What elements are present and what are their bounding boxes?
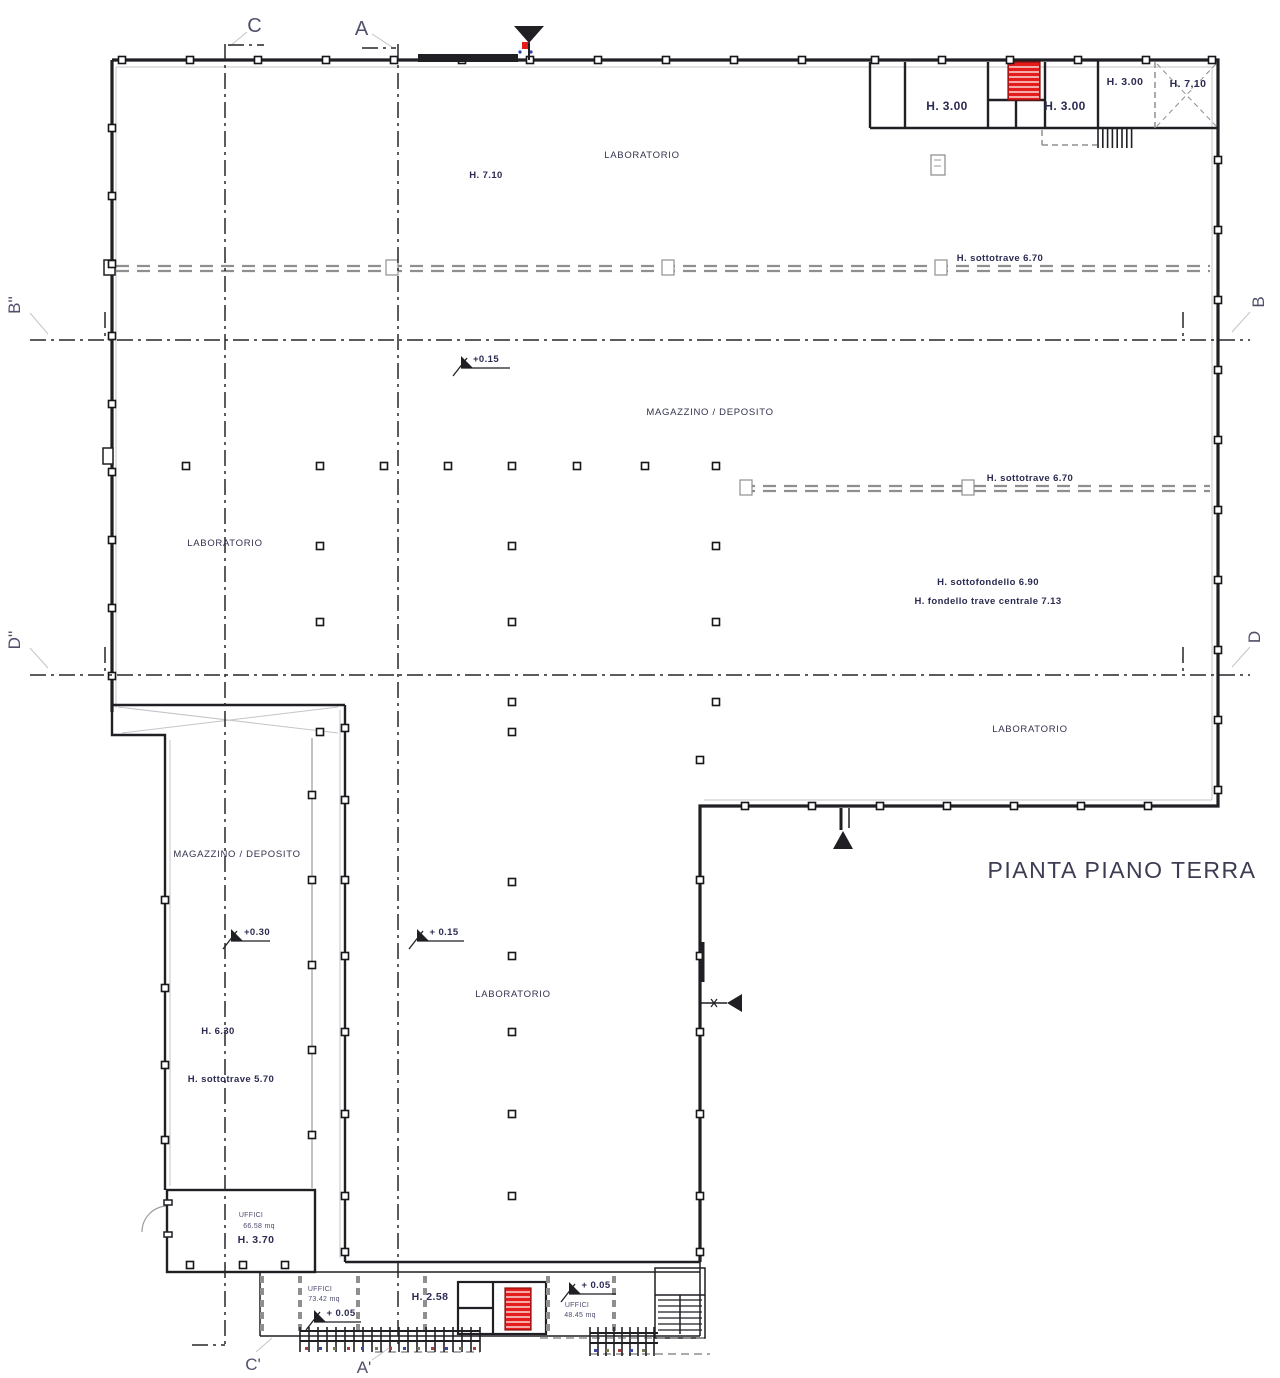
column-square — [1011, 803, 1018, 810]
glazed-front-mullions — [262, 1276, 614, 1332]
column-square — [309, 877, 316, 884]
label-level-005-right: + 0.05 — [581, 1280, 610, 1291]
label-magazzino-center: MAGAZZINO / DEPOSITO — [646, 407, 773, 418]
structural-columns — [109, 57, 1222, 1269]
column-square — [309, 792, 316, 799]
column-square — [509, 1029, 516, 1036]
column-square — [109, 401, 116, 408]
column-square — [1215, 297, 1222, 304]
marker-b-right: B — [1249, 296, 1268, 307]
column-square — [697, 1193, 704, 1200]
label-office-right-area: 48.45 mq — [564, 1312, 596, 1319]
column-square — [317, 463, 324, 470]
office-door-arc — [142, 1206, 168, 1232]
marker-a-bottom: A' — [357, 1358, 372, 1377]
exterior-walls — [112, 60, 1218, 1262]
label-uffici-left: UFFICI — [308, 1286, 332, 1293]
floor-plan-canvas: LABORATORIO H. 7.10 H. sottotrave 6.70 +… — [0, 0, 1280, 1378]
marker-c-top: C — [247, 15, 262, 37]
column-square — [309, 962, 316, 969]
column-square — [731, 57, 738, 64]
stair-bottom-red — [505, 1288, 531, 1330]
column-square — [1215, 227, 1222, 234]
column-square — [342, 953, 349, 960]
column-square — [183, 463, 190, 470]
column-square — [509, 463, 516, 470]
label-laboratorio-right: LABORATORIO — [992, 724, 1067, 735]
marker-b-left: B'' — [5, 296, 24, 314]
column-square — [109, 333, 116, 340]
entrance-arrow-mid — [727, 994, 742, 1012]
column-square — [697, 1111, 704, 1118]
level-marker-symbols — [223, 356, 616, 1330]
label-level-015-upper: +0.15 — [473, 354, 499, 365]
stair-top-red — [1008, 62, 1040, 100]
column-square — [944, 803, 951, 810]
plan-symbol-box — [931, 155, 945, 175]
column-square — [381, 463, 388, 470]
stair-hatches — [300, 127, 1132, 1356]
section-lines — [30, 44, 1250, 1348]
column-square — [697, 877, 704, 884]
column-square — [162, 1062, 169, 1069]
thin-walls — [103, 260, 705, 1338]
column-square — [713, 463, 720, 470]
column-square — [509, 1193, 516, 1200]
column-square — [309, 1132, 316, 1139]
column-square — [1215, 367, 1222, 374]
label-uffici-right: UFFICI — [565, 1302, 589, 1309]
label-level-015-lower: + 0.15 — [429, 927, 458, 938]
beam-line-brackets — [386, 260, 974, 495]
column-square — [697, 1249, 704, 1256]
column-square — [342, 725, 349, 732]
column-square — [109, 261, 116, 268]
entrance-dot — [518, 50, 521, 53]
column-square — [255, 57, 262, 64]
label-sottofondello: H. sottofondello 6.90 — [937, 577, 1039, 588]
column-square — [342, 1029, 349, 1036]
text-labels: LABORATORIO H. 7.10 H. sottotrave 6.70 +… — [173, 76, 1256, 1319]
column-square — [509, 879, 516, 886]
label-level-005-left: + 0.05 — [326, 1308, 355, 1319]
column-square — [317, 619, 324, 626]
column-square — [342, 1249, 349, 1256]
floor-plan-drawing: LABORATORIO H. 7.10 H. sottotrave 6.70 +… — [0, 0, 1280, 1378]
column-square — [391, 57, 398, 64]
column-square — [1143, 57, 1150, 64]
column-square — [187, 57, 194, 64]
column-square — [342, 1111, 349, 1118]
label-room3-h300: H. 3.00 — [1107, 76, 1144, 88]
column-square — [109, 125, 116, 132]
column-square — [1215, 157, 1222, 164]
column-square — [1007, 57, 1014, 64]
double-height-cross — [1157, 64, 1216, 126]
column-square — [187, 1262, 194, 1269]
column-square — [109, 469, 116, 476]
label-h258: H. 2.58 — [412, 1291, 449, 1303]
column-square — [809, 803, 816, 810]
column-square — [317, 543, 324, 550]
column-square — [1215, 647, 1222, 654]
label-laboratorio-top: LABORATORIO — [604, 150, 679, 161]
column-square — [663, 57, 670, 64]
label-laboratorio-left: LABORATORIO — [187, 538, 262, 549]
column-square — [595, 57, 602, 64]
column-square — [1215, 577, 1222, 584]
column-square — [872, 57, 879, 64]
column-square — [342, 797, 349, 804]
marker-a-top: A — [355, 18, 369, 40]
column-square — [1145, 803, 1152, 810]
label-laboratorio-lower: LABORATORIO — [475, 989, 550, 1000]
column-square — [342, 1193, 349, 1200]
label-magazzino-wing: MAGAZZINO / DEPOSITO — [173, 849, 300, 860]
column-square — [1075, 57, 1082, 64]
label-uffici-room: UFFICI — [239, 1212, 263, 1219]
label-sottotrave-670-upper: H. sottotrave 6.70 — [957, 253, 1043, 264]
stair-core-bottom — [458, 1282, 546, 1334]
label-room4-h710: H. 7,10 — [1170, 78, 1207, 90]
label-sottotrave-670-lower: H. sottotrave 6.70 — [987, 473, 1073, 484]
column-square — [713, 699, 720, 706]
column-square — [642, 463, 649, 470]
column-square — [799, 57, 806, 64]
column-square — [109, 193, 116, 200]
label-h630: H. 6.30 — [201, 1026, 234, 1037]
column-square — [509, 619, 516, 626]
column-square — [697, 1029, 704, 1036]
column-square — [697, 757, 704, 764]
label-room1-h300: H. 3.00 — [926, 99, 968, 113]
column-square — [240, 1262, 247, 1269]
column-square — [109, 537, 116, 544]
label-h710-top: H. 7.10 — [469, 170, 502, 181]
column-square — [162, 985, 169, 992]
section-marker-letters: C A C' A' B'' B D'' D — [5, 15, 1268, 1377]
column-square — [162, 897, 169, 904]
column-square — [162, 1137, 169, 1144]
column-square — [509, 1111, 516, 1118]
column-square — [1209, 57, 1216, 64]
column-square — [509, 953, 516, 960]
column-square — [109, 605, 116, 612]
column-square — [877, 803, 884, 810]
entrance-arrow-top — [514, 26, 544, 43]
beam-dashed-lines — [116, 266, 1210, 491]
column-square — [939, 57, 946, 64]
entrance-arrow-right — [833, 831, 853, 849]
column-square — [509, 699, 516, 706]
gray-dashed — [262, 62, 1216, 1354]
construction-lines — [30, 32, 1250, 1360]
wall-pilaster — [103, 448, 113, 464]
marker-d-left: D'' — [5, 631, 24, 650]
label-fondello-trave: H. fondello trave centrale 7.13 — [914, 596, 1061, 607]
column-square — [742, 803, 749, 810]
column-square — [282, 1262, 289, 1269]
column-square — [1215, 507, 1222, 514]
dimension-specks — [305, 1347, 645, 1352]
marker-d-right: D — [1245, 631, 1264, 643]
drawing-title: PIANTA PIANO TERRA — [988, 857, 1257, 883]
column-square — [713, 543, 720, 550]
column-square — [323, 57, 330, 64]
stair-red-blocks — [505, 42, 1040, 1330]
column-square — [317, 729, 324, 736]
column-square — [574, 463, 581, 470]
label-room2-h300: H. 3.00 — [1044, 99, 1086, 113]
column-square — [445, 463, 452, 470]
column-square — [713, 619, 720, 626]
label-h370: H. 3.70 — [238, 1234, 275, 1246]
column-square — [1078, 803, 1085, 810]
column-square — [1215, 787, 1222, 794]
label-office-main-area: 66.58 mq — [243, 1223, 275, 1230]
column-square — [309, 1047, 316, 1054]
column-square — [509, 543, 516, 550]
label-sottotrave-570: H. sottotrave 5.70 — [188, 1074, 274, 1085]
interior-walls — [112, 60, 1218, 1272]
label-office-left-area: 73.42 mq — [308, 1296, 340, 1303]
column-square — [109, 673, 116, 680]
marker-c-bottom: C' — [245, 1355, 261, 1374]
column-square — [1215, 717, 1222, 724]
column-square — [1215, 437, 1222, 444]
column-square — [509, 729, 516, 736]
column-square — [342, 877, 349, 884]
gate-bar — [418, 54, 518, 62]
label-level-030: +0.30 — [244, 927, 270, 938]
column-square — [119, 57, 126, 64]
